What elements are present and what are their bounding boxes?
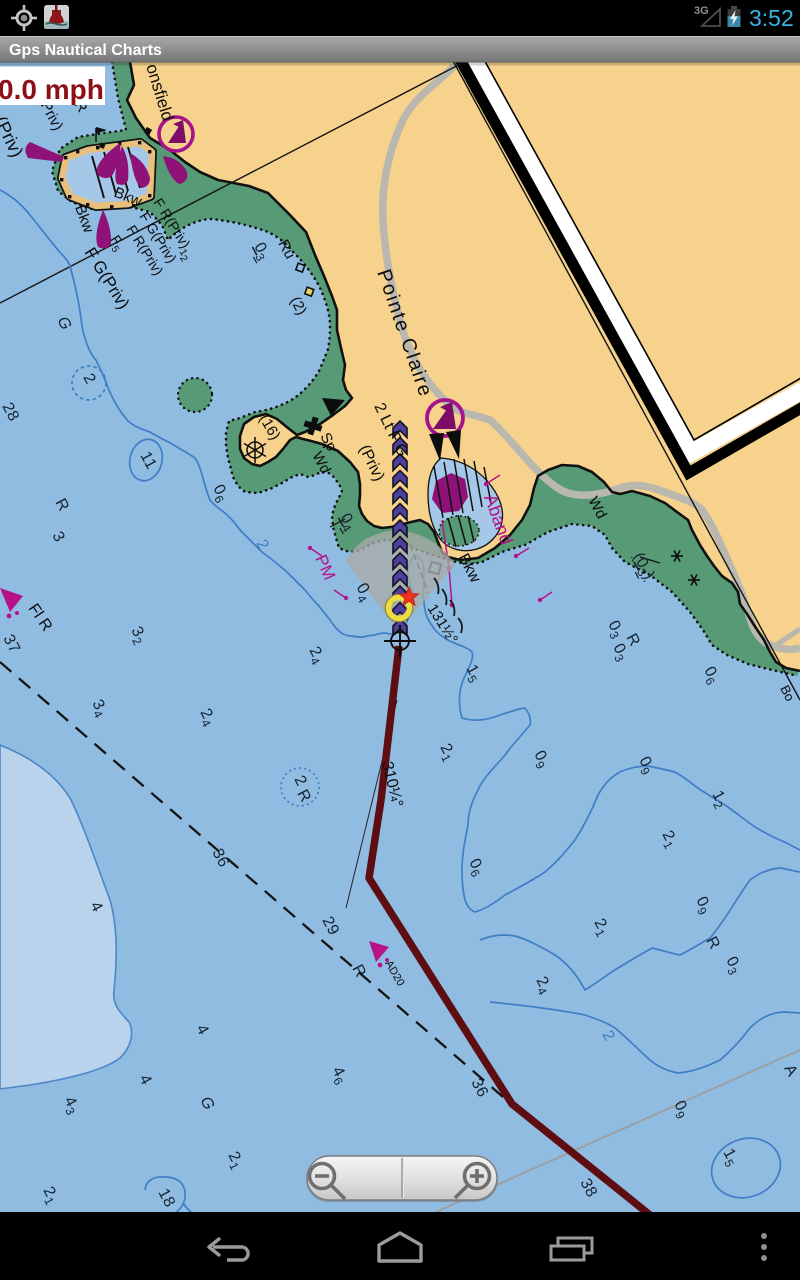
svg-text:Gps Nautical Charts: Gps Nautical Charts bbox=[9, 42, 162, 59]
svg-text:0.0 mph: 0.0 mph bbox=[0, 74, 104, 105]
svg-text:3:52: 3:52 bbox=[749, 5, 794, 31]
svg-text:3G: 3G bbox=[694, 5, 709, 17]
